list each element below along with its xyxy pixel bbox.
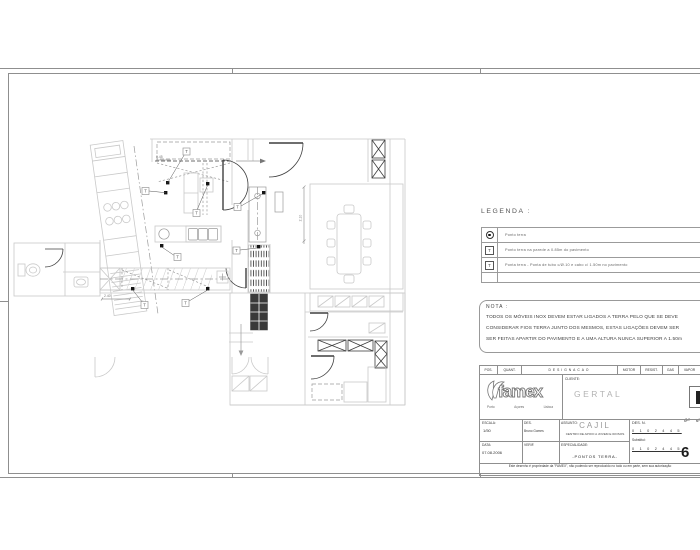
ground-point-dot-icon — [486, 231, 494, 239]
substitui-label: Substitui: — [632, 438, 646, 442]
especialidade-value: -PONTOS TERRA- — [561, 454, 629, 459]
svg-text:2.10: 2.10 — [299, 215, 303, 222]
header-designacao: DESIGNACAO — [522, 366, 618, 374]
svg-text:0.45: 0.45 — [156, 155, 163, 159]
legend-row-text: Ponta terra - Ponta de tubo c/Ø.10 e cab… — [498, 263, 628, 267]
header-resist: RESIST. — [641, 366, 663, 374]
header-motor: MOTOR — [618, 366, 641, 374]
cliente-value: GERTAL — [574, 389, 622, 399]
header-gas: GAS — [663, 366, 679, 374]
hatched-strip — [249, 245, 270, 292]
handwritten-note: ge — [684, 417, 690, 423]
svg-text:T: T — [185, 149, 188, 154]
city-acores: Açores — [514, 405, 524, 409]
note-line: TODOS OS MÓVEIS INOX DEVEM ESTAR LIGADOS… — [486, 315, 678, 320]
escala-value: 1/50 — [483, 428, 491, 433]
cooking-band — [155, 142, 232, 215]
data-value: 07.08.2006 — [482, 450, 502, 455]
svg-text:2.40: 2.40 — [104, 294, 111, 298]
svg-text:T: T — [235, 248, 238, 253]
prep-counter — [100, 268, 230, 290]
title-block: POS. QUANT. DESIGNACAO MOTOR RESIST. GAS… — [479, 365, 700, 476]
x-benches — [318, 340, 387, 368]
crossed-boxes — [372, 140, 385, 178]
svg-text:T: T — [236, 205, 239, 210]
sink-counter — [155, 226, 221, 242]
desn-label: DES. N. — [632, 421, 646, 425]
legend-row: Ponto terra — [482, 228, 700, 243]
drawing-sheet: T T T T T T T T 2.40 2.10 0.45 LEGENDA :… — [0, 0, 700, 550]
legend-row-empty — [482, 273, 700, 283]
wc-room — [18, 264, 88, 287]
especialidade-label: ESPECIALIDADE: — [561, 443, 588, 447]
cliente-label: CLIENTE: — [565, 377, 580, 381]
ground-point-tube-icon: T — [485, 261, 494, 270]
note-panel: NOTA : TODOS OS MÓVEIS INOX DEVEM ESTAR … — [479, 300, 700, 353]
logo-cities: Porto Açores Lisboa — [482, 405, 558, 409]
des-value: Bruno Gomes — [524, 429, 544, 433]
legend-title: LEGENDA : — [481, 208, 700, 215]
shaft-grid — [251, 294, 268, 330]
des-label: DES. — [524, 421, 532, 425]
doors — [45, 143, 334, 379]
legend-row-text: Ponto terra na parede a 0.85m do pavimen… — [498, 248, 589, 252]
legend-row: T Ponto terra na parede a 0.85m do pavim… — [482, 243, 700, 258]
dashed-equipment — [312, 384, 342, 400]
copyright-text: Este desenho é propriedade da "FAMEX", n… — [484, 464, 696, 468]
famex-logo: famex — [482, 376, 560, 404]
header-quant: QUANT. — [498, 366, 522, 374]
escala-label: ESCALA: — [482, 421, 496, 425]
svg-text:T: T — [176, 255, 179, 260]
header-vapor: VAPOR — [679, 366, 700, 374]
revision-row-1: 0 1 0 2 4 4 5 — [632, 429, 682, 433]
data-label: DATA: — [482, 443, 491, 447]
svg-text:T: T — [195, 211, 198, 216]
legend-table: Ponto terra T Ponto terra na parede a 0.… — [481, 227, 700, 283]
note-line: CONSIDERAR FIOS TERRA JUNTO DOS MESMOS, … — [486, 326, 679, 331]
header-pos: POS. — [480, 366, 498, 374]
logo-wordmark: famex — [498, 382, 544, 401]
svg-text:T: T — [184, 301, 187, 306]
bottom-room-equipment — [344, 367, 386, 402]
partner-logo-box — [689, 386, 700, 408]
assunto-subtitle: CENTRO DE APOIO A JOVEM E IDOSOS — [561, 432, 629, 436]
partner-logo-glyph — [696, 391, 700, 404]
sheet-number: 6 — [681, 444, 689, 461]
city-porto: Porto — [487, 405, 495, 409]
assunto-value: CAJIL — [561, 421, 629, 430]
verif-label: VERIF. — [524, 443, 534, 447]
svg-text:T: T — [144, 189, 147, 194]
legend-panel: LEGENDA : Ponto terra T Ponto terra na p… — [481, 208, 700, 215]
entrance-arrow — [236, 159, 266, 164]
locker-arcs — [232, 357, 268, 391]
dining-table — [327, 205, 371, 283]
legend-row: T Ponta terra - Ponta de tubo c/Ø.10 e c… — [482, 258, 700, 273]
service-line — [249, 187, 283, 242]
title-block-header: POS. QUANT. DESIGNACAO MOTOR RESIST. GAS… — [480, 366, 700, 374]
city-lisboa: Lisboa — [544, 405, 553, 409]
ground-point-wall-icon: T — [485, 246, 494, 255]
note-line: SER FEITAS APARTIR DO PAVIMENTO E A UMA … — [486, 337, 682, 342]
revision-row-2: 0 1 0 2 4 4 5 — [632, 447, 682, 451]
svg-text:T: T — [143, 303, 146, 308]
stairs-arrow — [229, 324, 253, 356]
note-title: NOTA : — [486, 304, 508, 310]
legend-row-text: Ponto terra — [498, 233, 526, 237]
